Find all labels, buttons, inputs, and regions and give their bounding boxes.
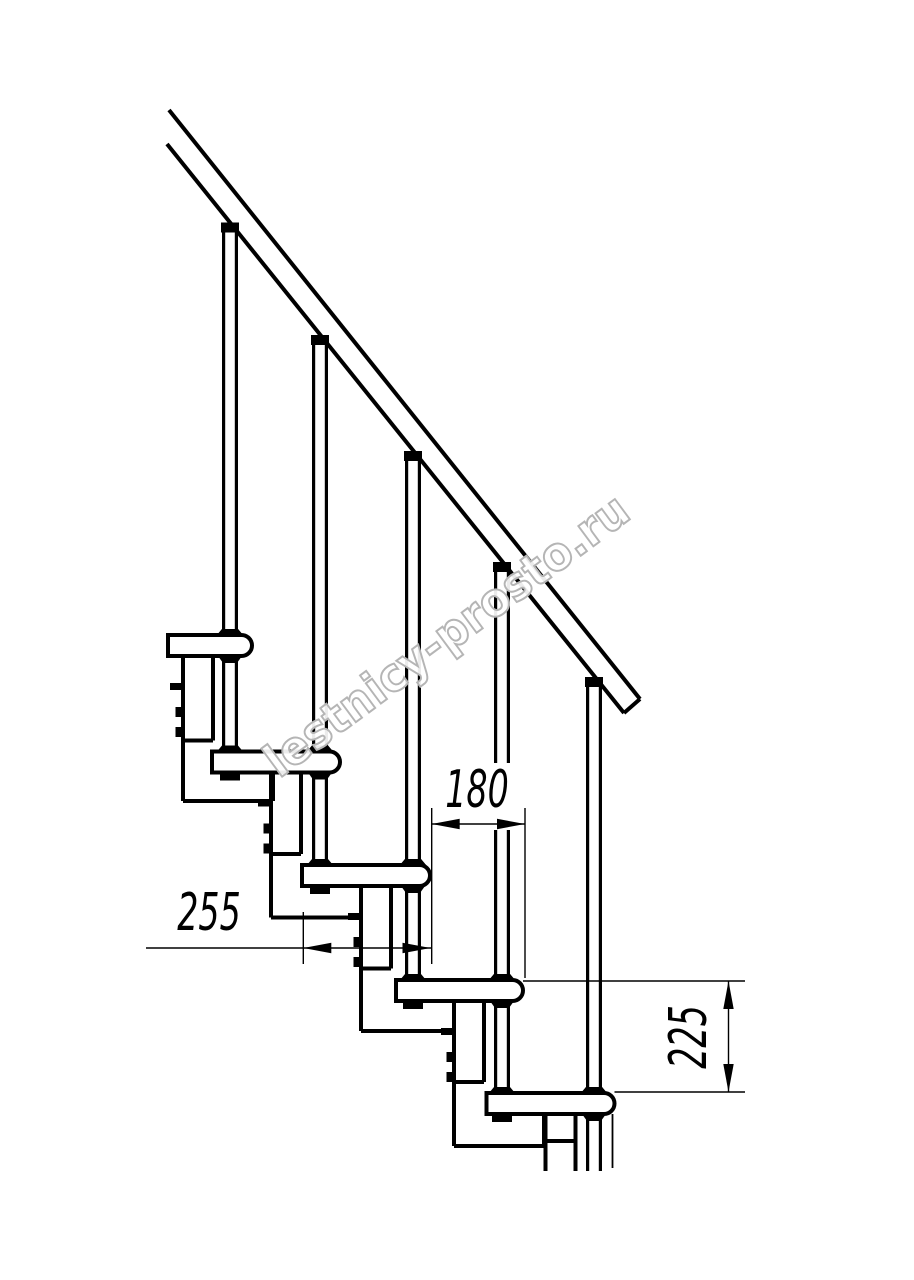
baluster-2-rods [314,343,327,748]
dim-180-arrow-left [432,819,460,829]
feet-overlay [217,629,607,1093]
module-3-bolt-2 [354,957,362,967]
baluster-1-rods [224,230,237,632]
module-4-body [454,1001,544,1146]
module-1-bolt-1 [176,707,184,717]
module-2-understep-bolt [310,887,330,894]
module-1-bolt-2 [176,727,184,737]
baluster-5 [581,677,607,1093]
baluster-1 [217,223,243,636]
handrail-top-line [169,110,640,699]
handrail-end-cap [624,699,640,713]
support-module-5-partial [546,1114,613,1171]
step-1 [168,635,252,656]
dim-225-label: 225 [658,1005,719,1069]
module-4-side-plate [441,1028,454,1035]
module-2-bolt-2 [264,844,272,854]
drawing-canvas: 180 255 225 lestnicy-prosto.ru [0,0,914,1280]
staircase-drawing: 180 255 225 lestnicy-prosto.ru [0,0,914,1280]
module-4-bolt-1 [447,1052,455,1062]
module-5-body [546,1114,576,1171]
module-5-post [588,1114,601,1171]
module-3-side-plate [348,913,361,920]
dim-255-label: 255 [177,882,241,943]
dim-225-arrow-down [723,1064,733,1092]
foot-overlay-3 [400,859,426,865]
step-5 [487,1093,615,1114]
dim-255-arrow-left [303,943,331,953]
dim-225-arrow-up [723,981,733,1009]
module-2-bolt-1 [264,824,272,834]
baluster-4-rods-lower [496,830,509,977]
dim-180-label: 180 [445,759,509,820]
dimension-255: 255 [146,882,432,964]
dimension-225: 225 [523,981,745,1092]
baluster-5-rods [588,685,601,1090]
module-1-understep-bolt [220,774,240,781]
support-module-4 [441,1001,544,1146]
module-4-understep-bolt [492,1115,512,1122]
dim-180-arrow-right [497,819,525,829]
module-4-post [496,1001,509,1093]
module-2-side-plate [258,800,271,807]
foot-overlay-4 [489,974,515,980]
module-2-body [271,773,361,918]
step-4 [396,980,523,1001]
support-module-1 [170,656,273,801]
foot-overlay-5 [581,1087,607,1093]
module-1-side-plate [170,683,183,690]
module-3-post [407,886,420,980]
module-3-understep-bolt [403,1002,423,1009]
dim-255-arrow-right [403,943,431,953]
support-module-3 [348,886,454,1031]
step-3 [302,865,430,886]
foot-overlay-1 [217,629,243,635]
module-1-post [224,656,237,752]
module-4-bolt-2 [447,1072,455,1082]
watermark-text: lestnicy-prosto.ru [254,483,640,788]
dimension-180: 180 [432,759,525,978]
module-3-bolt-1 [354,937,362,947]
module-2-post [314,773,327,866]
